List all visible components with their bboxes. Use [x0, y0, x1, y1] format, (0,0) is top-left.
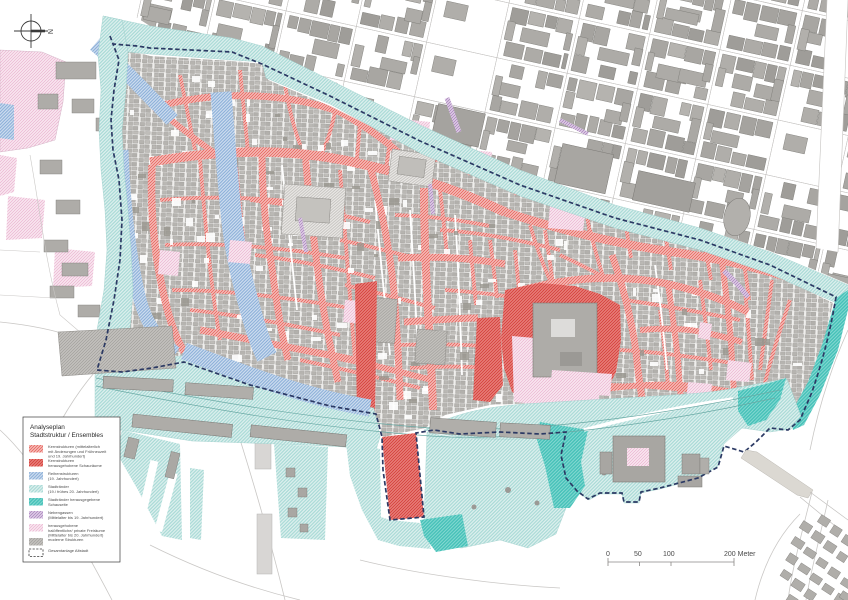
- svg-text:N: N: [46, 29, 53, 34]
- svg-text:Gesamtanlage Altstadt: Gesamtanlage Altstadt: [48, 548, 89, 553]
- svg-text:(19./ frühes 20. Jahrhundert): (19./ frühes 20. Jahrhundert): [48, 489, 99, 494]
- svg-text:200 Meter: 200 Meter: [724, 551, 756, 558]
- svg-text:100: 100: [663, 551, 675, 558]
- svg-text:Stadtstruktur / Ensembles: Stadtstruktur / Ensembles: [30, 432, 103, 439]
- svg-text:50: 50: [634, 551, 642, 558]
- svg-text:herausgehobene Schauräume: herausgehobene Schauräume: [48, 463, 103, 468]
- svg-text:moderne Strukturen: moderne Strukturen: [48, 537, 83, 542]
- svg-text:Schauseite: Schauseite: [48, 502, 69, 507]
- svg-text:(Mittelalter bis 19. Jahrhunde: (Mittelalter bis 19. Jahrhundert): [48, 515, 104, 520]
- svg-text:0: 0: [606, 551, 610, 558]
- svg-text:Analyseplan: Analyseplan: [30, 424, 65, 431]
- svg-text:(19. Jahrhundert): (19. Jahrhundert): [48, 476, 79, 481]
